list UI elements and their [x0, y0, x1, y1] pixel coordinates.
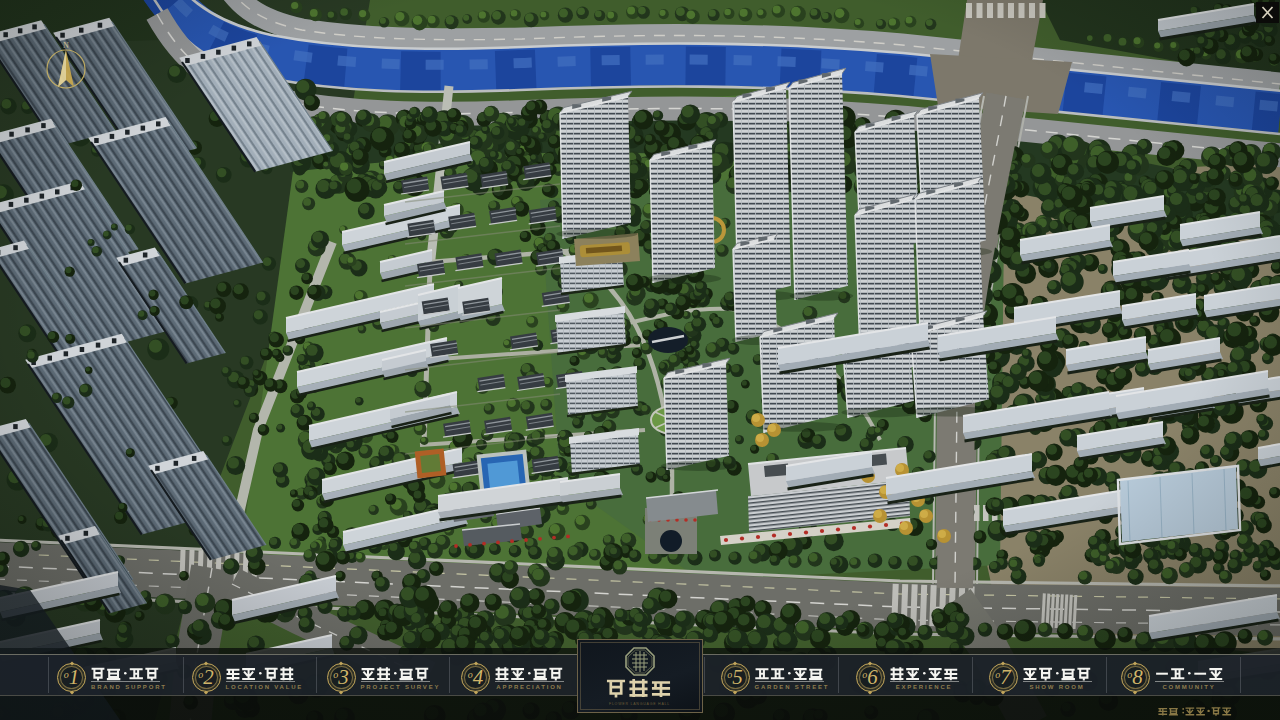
svg-text:N: N: [63, 41, 69, 50]
